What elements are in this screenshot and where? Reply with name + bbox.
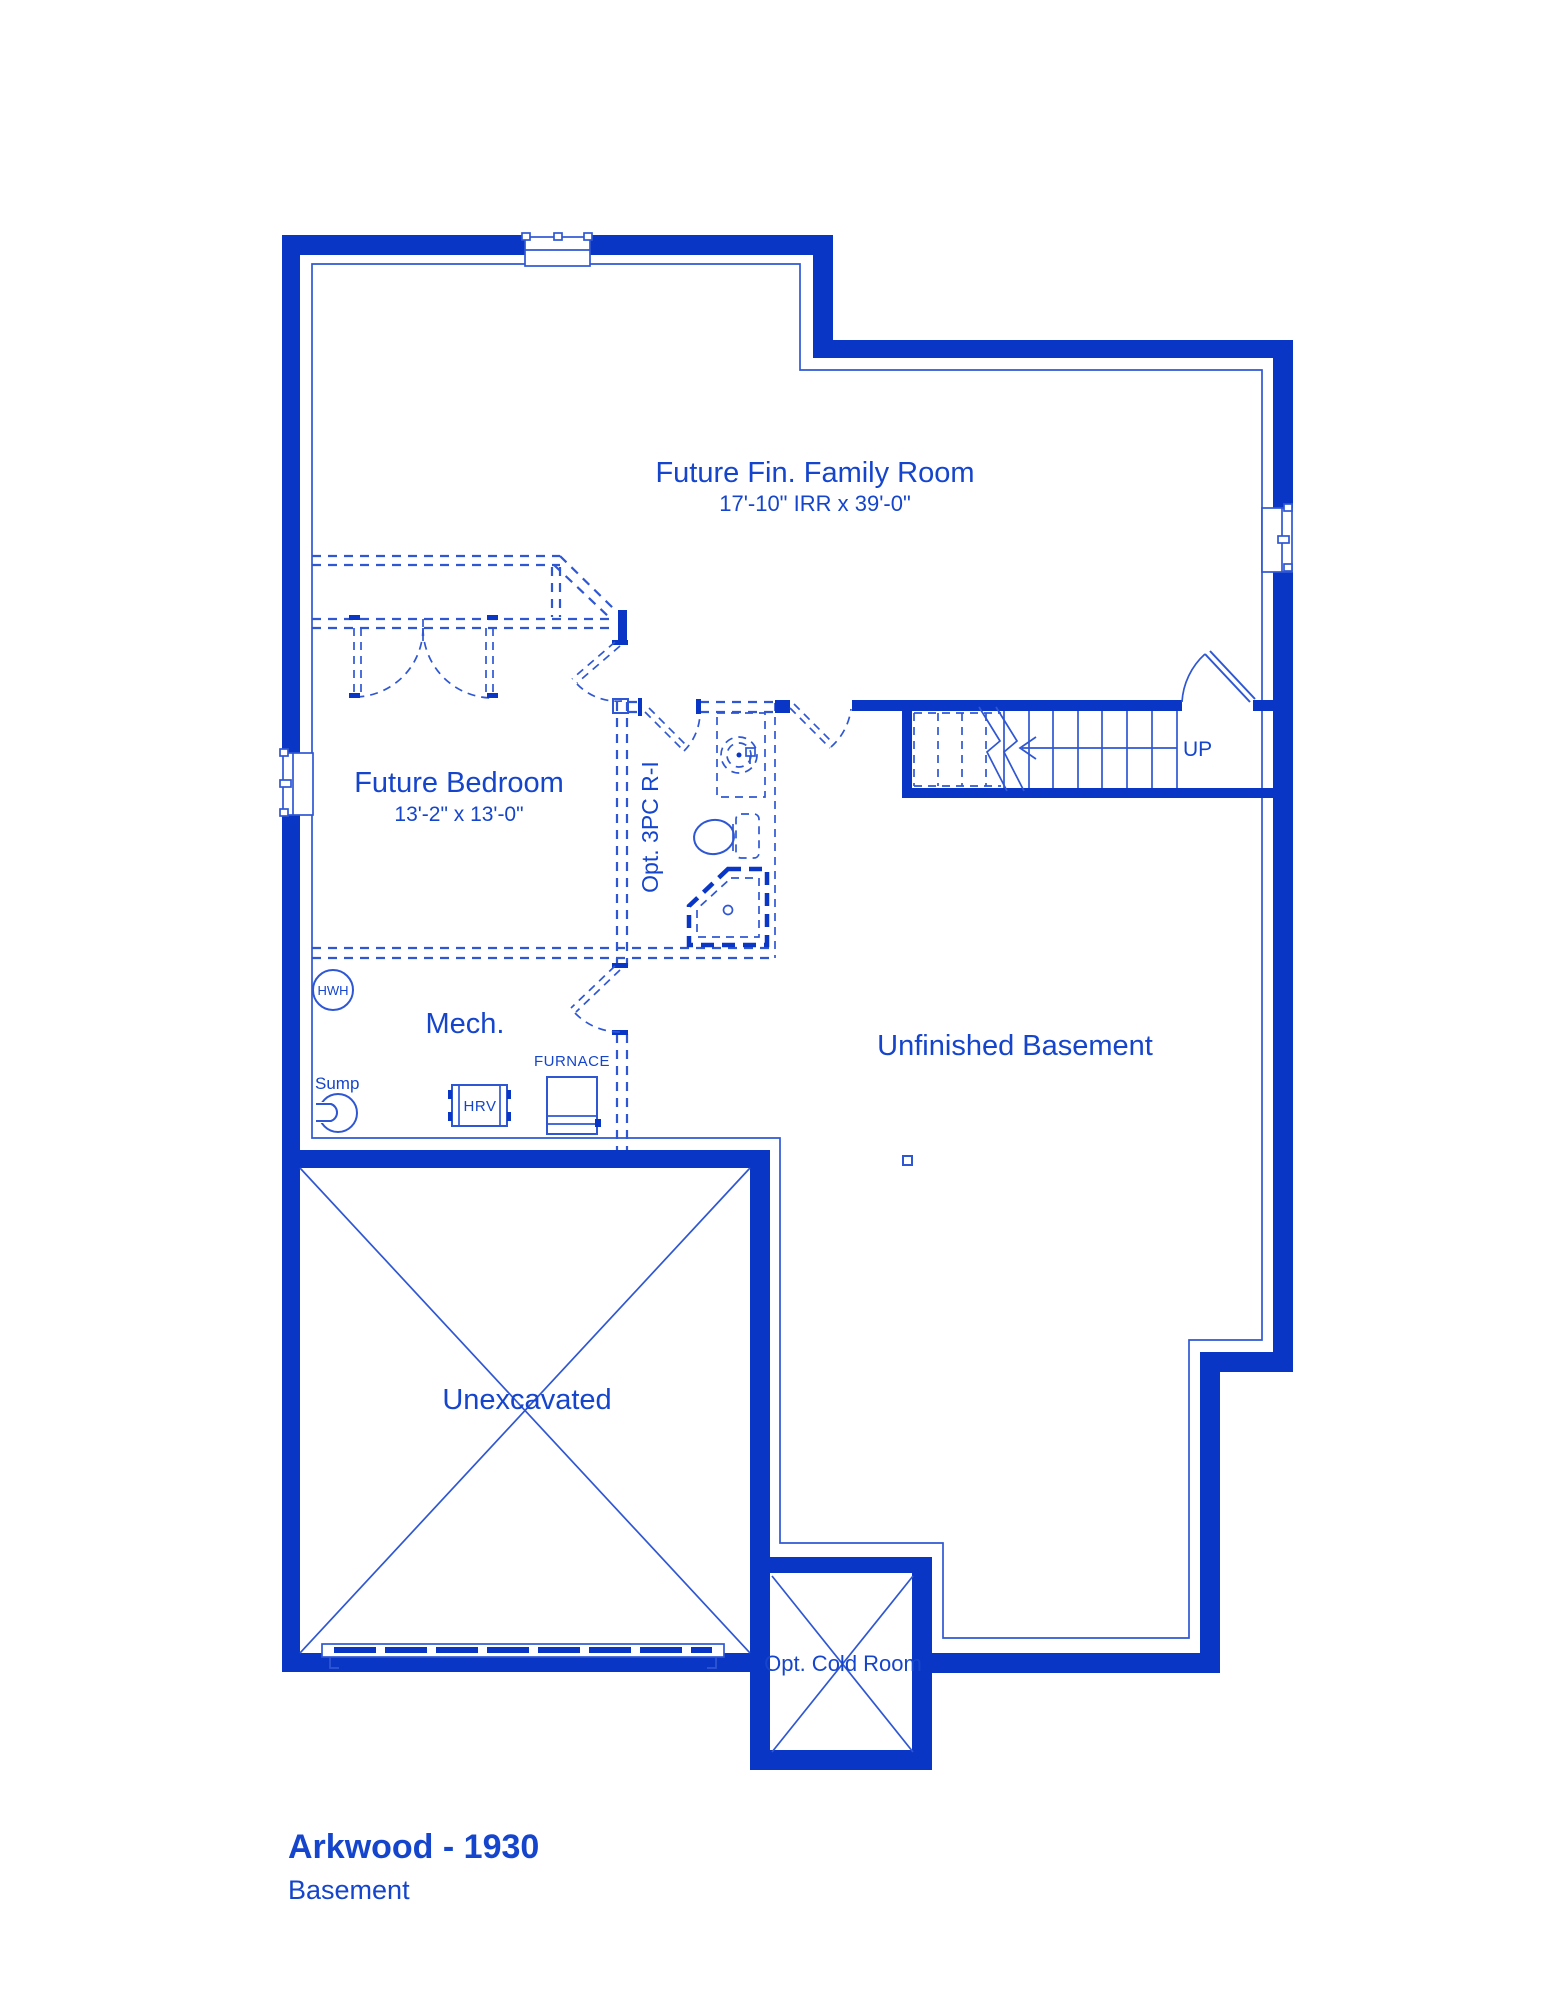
room-labels: Future Fin. Family Room 17'-10" IRR x 39…	[354, 457, 1212, 1676]
furnace-unit	[547, 1077, 601, 1134]
bedroom-label: Future Bedroom	[354, 767, 564, 799]
title-block: Arkwood - 1930 Basement	[288, 1828, 539, 1905]
window-top	[522, 233, 592, 266]
mech-label: Mech.	[426, 1008, 505, 1040]
family-room-label: Future Fin. Family Room	[655, 457, 974, 489]
bathroom-door	[645, 708, 700, 751]
plan-subtitle: Basement	[288, 1875, 410, 1905]
furnace-label: FURNACE	[534, 1053, 610, 1070]
family-room-dims: 17'-10" IRR x 39'-0"	[719, 491, 911, 516]
sump-pump-symbol	[314, 1094, 357, 1132]
unexcavated-area	[300, 1168, 750, 1668]
equipment-labels: HWH Sump HRV FURNACE	[315, 983, 610, 1115]
sump-label: Sump	[315, 1074, 359, 1093]
stair-door	[1182, 651, 1255, 702]
hall-door	[790, 704, 851, 748]
basement-label: Unfinished Basement	[877, 1030, 1153, 1062]
bath-label: Opt. 3PC R-I	[637, 761, 663, 893]
floor-plan-sheet: Future Fin. Family Room 17'-10" IRR x 39…	[0, 0, 1546, 2000]
staircase	[914, 707, 1177, 791]
bedroom-dims: 13'-2" x 13'-0"	[394, 803, 523, 826]
stairs-up-label: UP	[1183, 738, 1212, 761]
unexcavated-label: Unexcavated	[442, 1384, 611, 1416]
mech-door	[571, 963, 628, 1035]
water-heater-label: HWH	[317, 983, 348, 998]
hrv-label: HRV	[464, 1098, 497, 1115]
floor-plan-svg: Future Fin. Family Room 17'-10" IRR x 39…	[0, 0, 1546, 2000]
shower-fixture	[689, 869, 767, 945]
window-right	[1262, 504, 1292, 572]
support-column	[903, 1156, 912, 1165]
bedroom-door	[572, 640, 628, 713]
toilet-fixture	[692, 814, 759, 858]
cold-room-label: Opt. Cold Room	[764, 1651, 922, 1676]
sink-fixture	[717, 713, 765, 797]
plan-title: Arkwood - 1930	[288, 1828, 539, 1866]
window-left	[280, 749, 313, 816]
